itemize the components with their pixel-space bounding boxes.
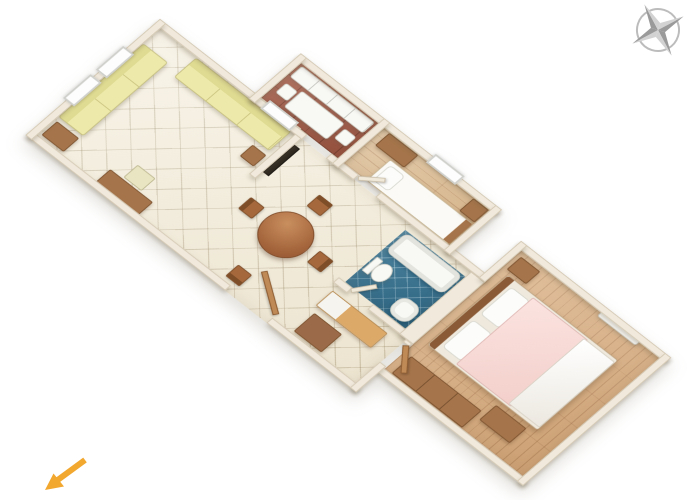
single-bedroom-door-leaf [358,176,386,183]
floor-plan-canvas [0,0,700,500]
apartment-floor-plan [19,0,682,500]
direction-arrow-icon [38,452,100,500]
compass-rose-icon [618,0,696,64]
